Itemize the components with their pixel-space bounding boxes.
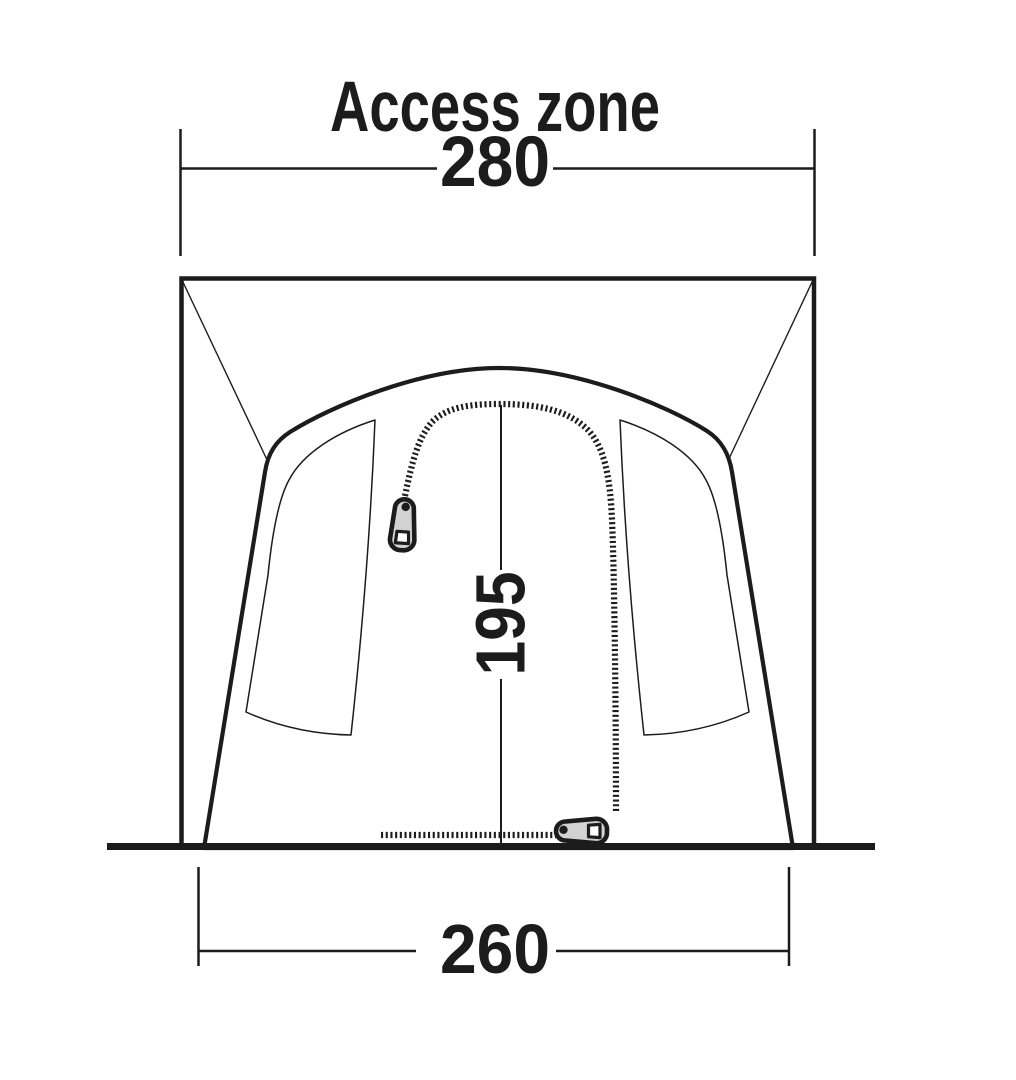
svg-text:195: 195 <box>462 572 540 676</box>
svg-text:280: 280 <box>440 123 550 202</box>
svg-text:260: 260 <box>440 910 550 988</box>
